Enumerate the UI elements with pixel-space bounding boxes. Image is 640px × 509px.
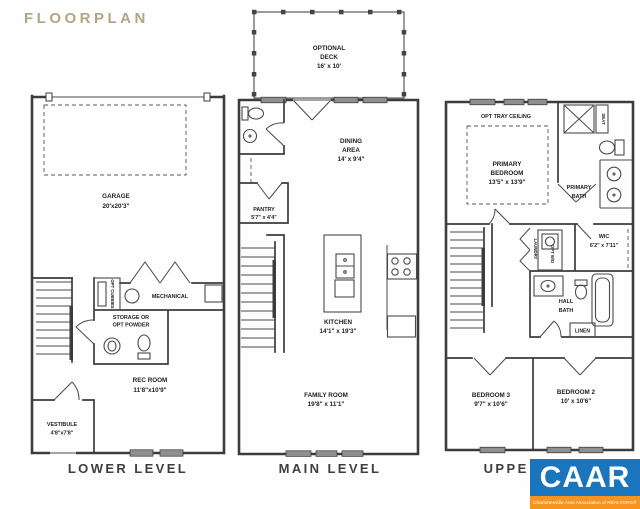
- pantry-name: PANTRY: [253, 207, 275, 213]
- powder-room: [239, 100, 284, 183]
- primary-bedroom-label-1: PRIMARY: [493, 161, 523, 168]
- lower-outer-walls: [32, 96, 224, 453]
- upper-level-plan: OPT TRAY CEILING PRIMARY BEDROOM 13'5" x…: [444, 96, 640, 457]
- linen-closet: LINEN: [570, 323, 595, 337]
- sink-icon: [244, 130, 257, 143]
- deck-dims: 16' x 10': [317, 63, 342, 70]
- garage-dims: 20'x20'3": [103, 203, 130, 210]
- dining-dims: 14' x 9'4": [338, 156, 365, 163]
- garage-name: GARAGE: [102, 193, 130, 200]
- dining-area-label: DINING AREA 14' x 9'4": [338, 138, 365, 163]
- caar-logo-text: CAAR: [540, 461, 631, 495]
- caar-logo-orange-strip: Charlottesville Area Association of REAL…: [530, 496, 640, 509]
- main-level-plan: OPTIONAL DECK 16' x 10': [237, 8, 423, 458]
- bedroom3-label: BEDROOM 3 9'7" x 10'6": [472, 392, 511, 408]
- upper-mid-walls: [446, 209, 633, 337]
- bathtub-icon: [592, 274, 613, 326]
- optional-deck: OPTIONAL DECK 16' x 10': [252, 10, 406, 98]
- wic-name: WIC: [599, 234, 610, 240]
- range-icon: [388, 254, 417, 279]
- kitchen-island: [324, 235, 361, 312]
- vanity-icon: [534, 276, 563, 296]
- toilet-icon: [138, 335, 150, 359]
- toilet-icon: [600, 140, 625, 155]
- stairs-lower: [36, 278, 73, 362]
- bedroom3-dims: 9'7" x 10'6": [474, 401, 507, 408]
- wic-door: [577, 224, 591, 239]
- primary-bedroom-dims: 13'5" x 13'9": [489, 179, 526, 186]
- dishwasher-icon: [335, 280, 354, 297]
- primary-bath-label-2: BATH: [572, 194, 587, 200]
- opt-wd-label: OPT W/D: [550, 245, 555, 263]
- wic-dims: 6'2" x 7'11": [590, 243, 619, 249]
- family-room-name: FAMILY ROOM: [304, 392, 348, 399]
- kitchen-name: KITCHEN: [324, 319, 352, 326]
- kitchen-counter: [387, 245, 417, 337]
- storage-label-1: STORAGE OR: [113, 315, 149, 321]
- door-arc: [540, 321, 561, 337]
- caar-logo: CAAR Charlottesville Area Association of…: [527, 456, 640, 509]
- door-arc: [76, 320, 94, 344]
- bifold-door: [520, 228, 530, 271]
- hvac-unit-icon: [205, 285, 222, 302]
- stairs-upper: [450, 228, 485, 332]
- stairs-main: [241, 235, 284, 352]
- pantry-room: PANTRY 5'7" x 4'4": [239, 183, 288, 223]
- garage-door: [44, 93, 210, 175]
- floorplan-page: FLOORPLAN GARAGE 20'x20'3" OPT CUBBIES: [0, 0, 640, 509]
- deck-door: [294, 101, 330, 120]
- bedroom2-label: BEDROOM 2 10' x 10'6": [557, 389, 596, 405]
- family-room-label: FAMILY ROOM 19'8" x 11'1": [304, 392, 348, 408]
- mechanical-room: MECHANICAL: [125, 285, 222, 303]
- pantry-dims: 5'7" x 4'4": [251, 215, 277, 221]
- deck-label-2: DECK: [320, 54, 338, 61]
- cubbies-closet: OPT CUBBIES: [94, 278, 120, 310]
- water-heater-icon: [125, 289, 139, 303]
- washer-dryer-icon: [538, 230, 562, 270]
- page-title: FLOORPLAN: [24, 10, 149, 27]
- upper-top-windows: [470, 99, 547, 105]
- bedroom2-name: BEDROOM 2: [557, 389, 596, 396]
- shower-seat-label: SEAT: [601, 113, 606, 125]
- bedroom2-dims: 10' x 10'6": [561, 398, 592, 405]
- garage-label: GARAGE 20'x20'3": [102, 193, 130, 210]
- door-arc: [54, 382, 79, 400]
- bedroom3-name: BEDROOM 3: [472, 392, 511, 399]
- vestibule-room: VESTIBULE 4'8"x7'8": [47, 382, 79, 456]
- laundry-closet: LAUNDRY OPT W/D: [520, 228, 562, 271]
- lower-level-label: LOWER LEVEL: [28, 461, 228, 476]
- dining-label-2: AREA: [342, 147, 360, 154]
- wic-closet: WIC 6'2" x 7'11": [577, 224, 628, 268]
- rec-room-name: REC ROOM: [133, 377, 168, 384]
- pedestal-sink-icon: [104, 338, 120, 354]
- primary-bath-label-1: PRIMARY: [567, 185, 592, 191]
- deck-label-1: OPTIONAL: [313, 45, 346, 52]
- hall-bath-label-1: HALL: [559, 299, 574, 305]
- caar-logo-tagline: Charlottesville Area Association of REAL…: [533, 500, 636, 505]
- main-level-label: MAIN LEVEL: [237, 461, 423, 476]
- hall-bath: HALL BATH LINEN: [534, 274, 613, 337]
- kitchen-label: KITCHEN 14'1" x 19'3": [320, 319, 357, 335]
- mechanical-label: MECHANICAL: [152, 294, 189, 300]
- caar-logo-blue-box: CAAR: [530, 459, 640, 496]
- storage-label-2: OPT POWDER: [113, 323, 150, 329]
- refrigerator-icon: [388, 316, 416, 337]
- tray-ceiling-label: OPT TRAY CEILING: [481, 114, 531, 120]
- hall-bath-label-2: BATH: [559, 308, 574, 314]
- main-bottom-windows: [286, 451, 363, 457]
- bedroom-doors: [474, 358, 596, 375]
- cubbies-label: OPT CUBBIES: [110, 279, 115, 308]
- storage-powder-room: STORAGE OR OPT POWDER: [76, 315, 150, 359]
- laundry-label: LAUNDRY: [533, 239, 538, 260]
- family-room-dims: 19'8" x 11'1": [308, 401, 345, 408]
- lower-level-plan: GARAGE 20'x20'3" OPT CUBBIES MECHANICAL …: [28, 92, 228, 457]
- primary-bedroom-door-arc: [489, 209, 510, 224]
- linen-label: LINEN: [575, 329, 590, 335]
- rec-room-label: REC ROOM 11'8"x10'9": [133, 377, 168, 394]
- rec-room-dims: 11'8"x10'9": [133, 387, 166, 394]
- primary-bedroom-label-2: BEDROOM: [491, 170, 524, 177]
- primary-bath: SEAT PRIMARY BATH: [564, 105, 633, 208]
- kitchen-dims: 14'1" x 19'3": [320, 328, 357, 335]
- pantry-door: [257, 183, 282, 199]
- dining-label-1: DINING: [340, 138, 362, 145]
- toilet-icon: [242, 107, 264, 120]
- double-vanity-icon: [600, 160, 633, 208]
- vestibule-dims: 4'8"x7'8": [51, 431, 74, 437]
- toilet-icon: [575, 280, 587, 299]
- island-sink-icon: [336, 254, 354, 278]
- vestibule-name: VESTIBULE: [47, 422, 78, 428]
- door-arc: [266, 123, 284, 146]
